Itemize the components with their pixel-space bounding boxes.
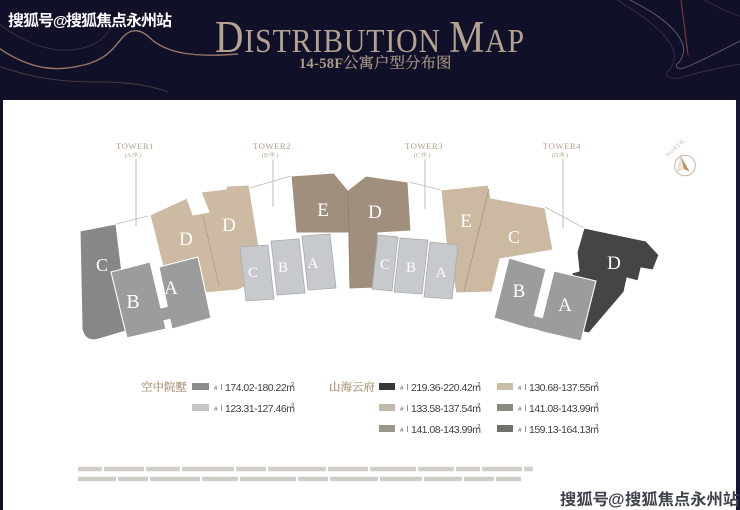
svg-text:174.02-180.22m: 174.02-180.22m [225,382,295,394]
svg-text:): ) [566,152,568,159]
svg-text:TOWER4: TOWER4 [543,141,581,151]
svg-text:C: C [248,265,258,281]
svg-text:A: A [436,265,447,281]
svg-text:219.36-220.42m: 219.36-220.42m [411,382,481,394]
svg-text:#: # [400,406,404,413]
svg-text:B: B [278,260,288,276]
svg-text:B: B [406,260,416,276]
svg-text:C: C [508,227,520,247]
svg-text:D: D [222,215,236,236]
svg-text:TOWER2: TOWER2 [253,141,291,151]
svg-text:133.58-137.54m: 133.58-137.54m [411,403,481,415]
svg-text:D: D [368,202,382,223]
svg-text:#: # [518,427,522,434]
svg-text:130.68-137.55m: 130.68-137.55m [529,382,599,394]
svg-text:#: # [518,385,522,392]
svg-text:): ) [276,152,278,159]
svg-text:(D: (D [552,152,559,159]
svg-text:): ) [428,152,430,159]
svg-text:E: E [460,211,472,232]
svg-text:(A: (A [125,152,132,159]
svg-text:14-58F: 14-58F [299,56,344,72]
svg-text:#: # [400,385,404,392]
svg-text:@: @ [53,13,68,30]
svg-text:B: B [513,281,526,302]
svg-text:123.31-127.46m: 123.31-127.46m [225,403,295,415]
svg-text:A: A [164,278,178,299]
svg-text:E: E [317,200,329,221]
svg-text:): ) [139,152,141,159]
svg-text:C: C [96,255,108,275]
svg-text:A: A [308,256,319,272]
svg-text:B: B [126,291,139,313]
svg-text:TOWER1: TOWER1 [116,141,154,151]
svg-text:#: # [518,406,522,413]
svg-text:#: # [214,385,218,392]
svg-text:D: D [607,253,621,274]
svg-text:C: C [380,257,390,273]
svg-text:(B: (B [262,152,268,159]
svg-text:#: # [214,406,218,413]
svg-text:159.13-164.13m: 159.13-164.13m [529,424,599,436]
svg-text:A: A [558,295,572,316]
svg-text:D: D [179,229,193,250]
svg-text:(C: (C [414,152,420,159]
svg-text:@: @ [608,490,625,509]
svg-text:TOWER3: TOWER3 [405,141,443,151]
svg-text:141.08-143.99m: 141.08-143.99m [411,424,481,436]
svg-text:141.08-143.99m: 141.08-143.99m [529,403,599,415]
svg-text:#: # [400,427,404,434]
